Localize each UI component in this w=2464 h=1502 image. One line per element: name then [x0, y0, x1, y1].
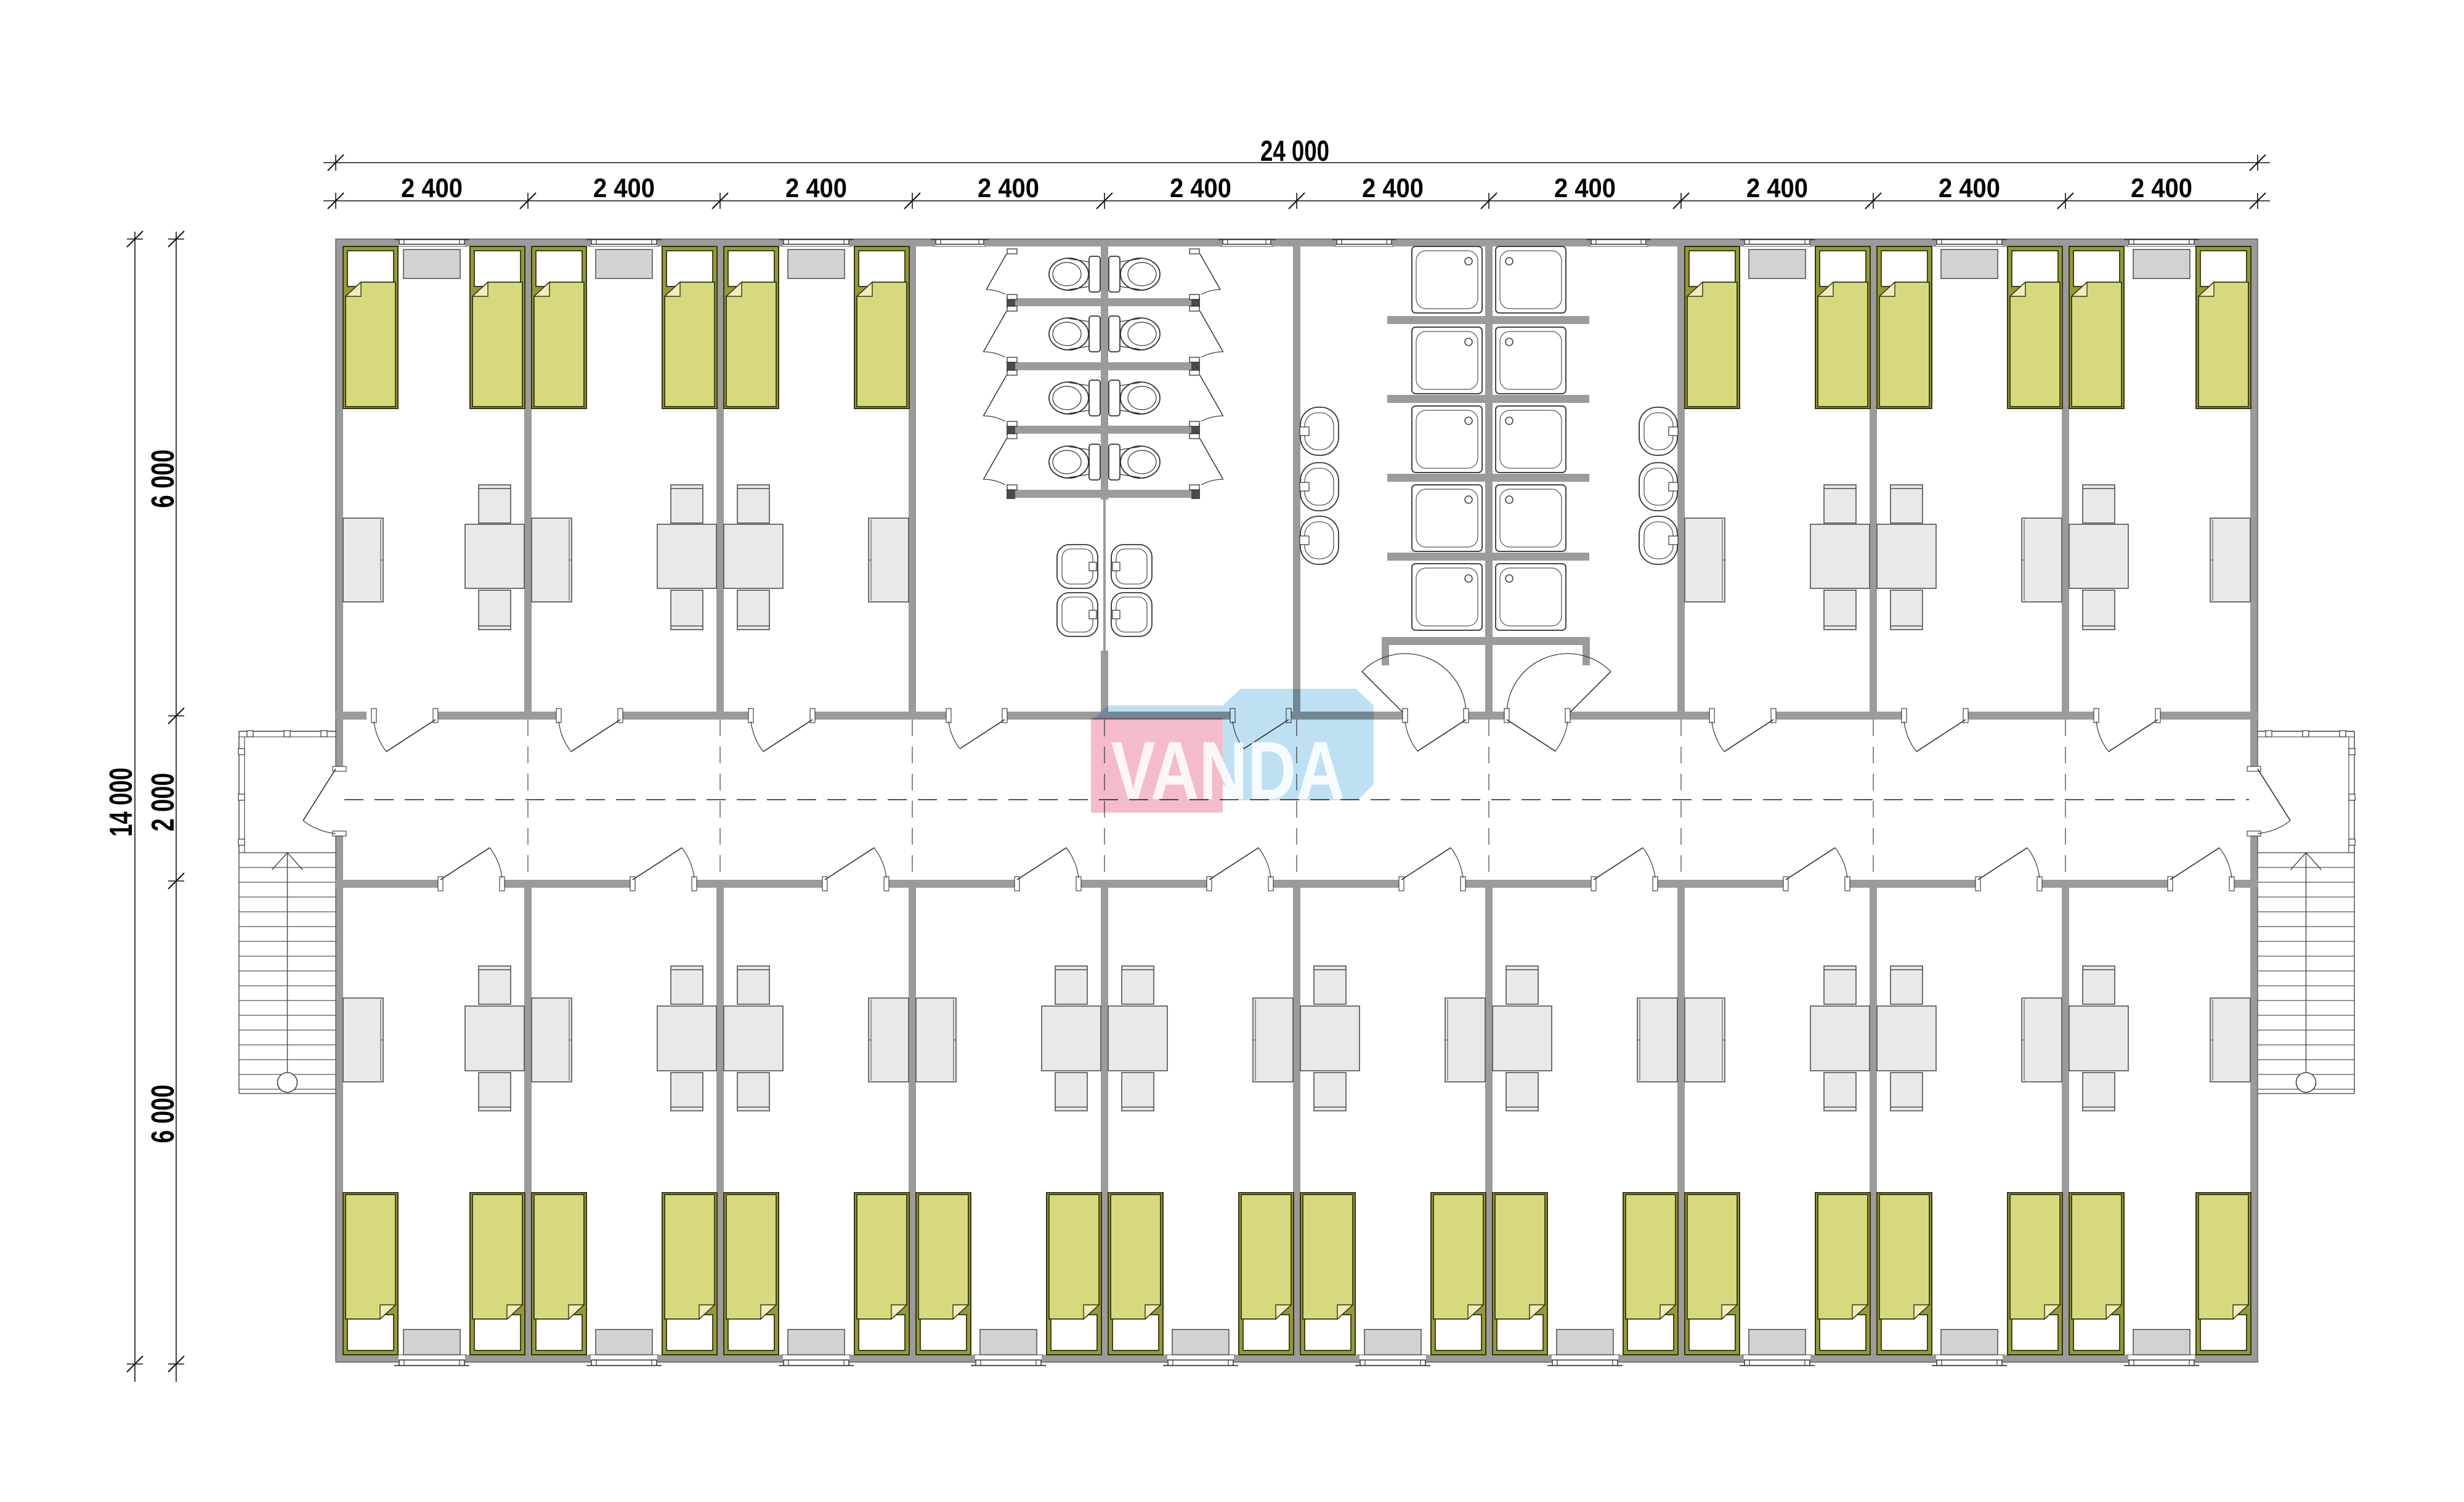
svg-text:2 400: 2 400	[1746, 173, 1808, 203]
svg-text:2 000: 2 000	[145, 773, 181, 832]
svg-text:2 400: 2 400	[1939, 173, 2000, 203]
svg-text:24 000: 24 000	[1260, 134, 1329, 167]
svg-text:2 400: 2 400	[401, 173, 463, 203]
svg-text:2 400: 2 400	[1170, 173, 1231, 203]
svg-text:6 000: 6 000	[145, 1085, 181, 1143]
svg-text:2 400: 2 400	[1362, 173, 1424, 203]
svg-text:6 000: 6 000	[145, 450, 181, 508]
svg-text:2 400: 2 400	[978, 173, 1039, 203]
svg-text:VANDA: VANDA	[1111, 725, 1345, 817]
svg-text:2 400: 2 400	[785, 173, 847, 203]
svg-text:2 400: 2 400	[2131, 173, 2192, 203]
svg-text:14 000: 14 000	[103, 768, 139, 837]
svg-text:2 400: 2 400	[593, 173, 655, 203]
svg-text:2 400: 2 400	[1554, 173, 1616, 203]
